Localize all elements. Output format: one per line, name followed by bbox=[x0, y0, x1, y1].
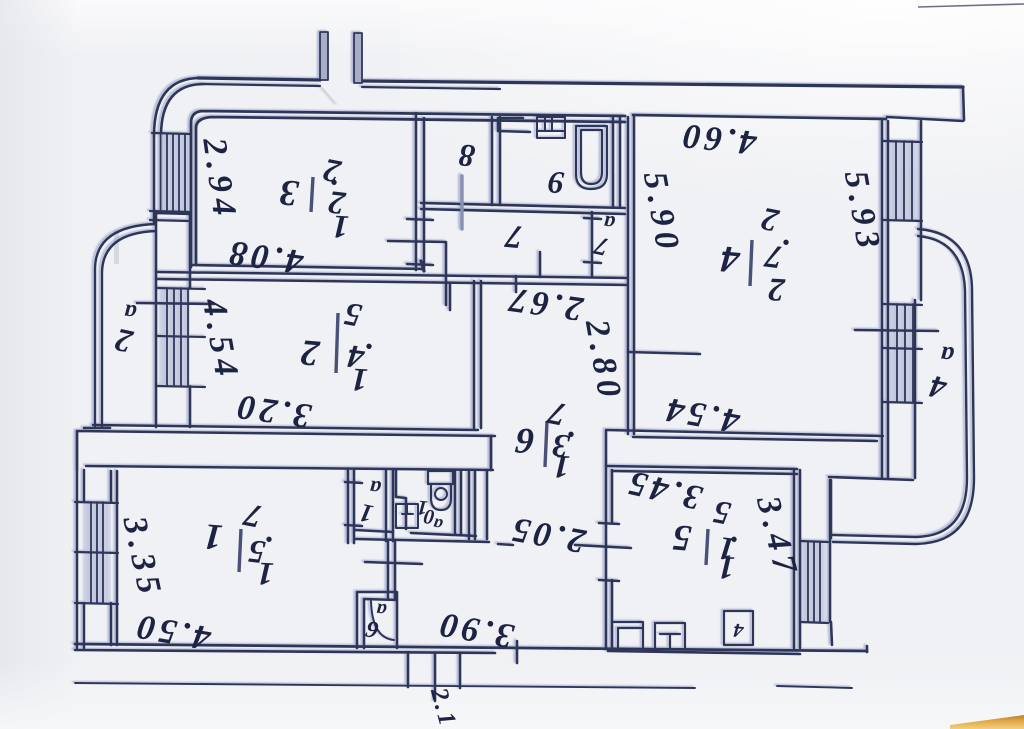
svg-text:1: 1 bbox=[202, 515, 224, 557]
svg-text:4: 4 bbox=[733, 619, 746, 642]
svg-text:2: 2 bbox=[299, 331, 322, 374]
svg-text:2: 2 bbox=[767, 271, 786, 308]
svg-text:3: 3 bbox=[278, 171, 301, 214]
svg-text:a: a bbox=[369, 476, 382, 502]
svg-text:4: 4 bbox=[719, 237, 743, 281]
svg-text:8: 8 bbox=[458, 137, 477, 174]
svg-text:a: a bbox=[123, 298, 137, 325]
svg-text:4.60: 4.60 bbox=[677, 116, 759, 163]
svg-text:5: 5 bbox=[671, 516, 693, 558]
svg-text:9: 9 bbox=[547, 164, 566, 201]
svg-text:a: a bbox=[940, 340, 955, 370]
